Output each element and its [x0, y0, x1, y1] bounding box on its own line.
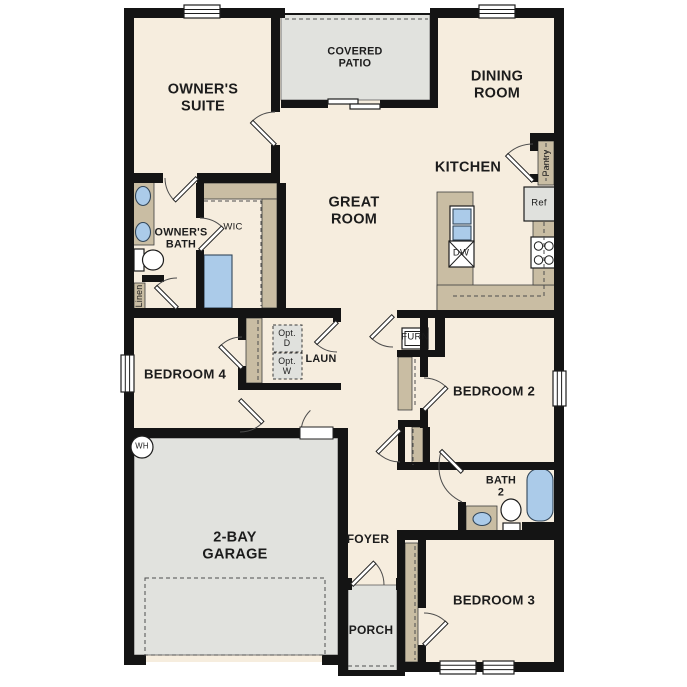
- room-label-foyer: FOYER: [347, 533, 390, 547]
- label-water-heater: WH: [135, 443, 149, 452]
- owners-bath-sink-2: [136, 223, 151, 242]
- bedroom4-closet: [246, 318, 262, 383]
- room-label-owners-bath: OWNER'S BATH: [155, 227, 208, 252]
- window-bedroom3-right: [483, 661, 514, 674]
- toilet-owners-bath: [134, 249, 164, 271]
- window-owners-suite: [184, 5, 220, 18]
- bath2-tub: [527, 469, 553, 521]
- room-label-bedroom2: BEDROOM 2: [453, 383, 535, 398]
- kitchen-sink-basin-1: [453, 209, 471, 224]
- bedroom2-closet-a: [398, 357, 412, 410]
- label-furnace: FURN: [401, 333, 428, 344]
- room-label-wic: WIC: [223, 223, 242, 234]
- room-label-owners-suite: OWNER'S SUITE: [168, 81, 238, 114]
- label-fridge: Ref: [531, 199, 547, 210]
- hall-closet-b: [412, 427, 423, 467]
- room-label-porch: PORCH: [349, 624, 394, 638]
- room-label-covered-patio: COVERED PATIO: [327, 46, 382, 71]
- bath2-sink: [473, 513, 491, 526]
- bedroom3-closet: [405, 543, 418, 662]
- floor-plan-drawing: [0, 0, 687, 687]
- room-label-dining-room: DINING ROOM: [471, 68, 523, 101]
- label-dishwasher: DW: [453, 249, 469, 260]
- room-label-bath2: BATH 2: [486, 475, 516, 500]
- room-label-bedroom4: BEDROOM 4: [144, 366, 226, 381]
- window-dining: [479, 5, 515, 18]
- room-label-garage: 2-BAY GARAGE: [202, 529, 267, 562]
- label-linen: Linen: [134, 285, 144, 308]
- room-label-great-room: GREAT ROOM: [329, 194, 380, 227]
- label-optional-washer: Opt. W: [278, 356, 296, 376]
- label-optional-dryer: Opt. D: [278, 328, 296, 348]
- room-label-kitchen: KITCHEN: [435, 160, 501, 177]
- toilet-bath2: [501, 499, 521, 532]
- owners-shower: [204, 255, 232, 308]
- owners-bath-sink-1: [136, 187, 151, 206]
- window-bedroom3-left: [440, 661, 476, 674]
- kitchen-counter-bottom: [437, 285, 555, 311]
- window-bedroom4: [121, 355, 134, 392]
- window-bedroom2: [553, 371, 566, 406]
- wic-shelf-right: [262, 199, 277, 308]
- room-label-laundry: LAUN: [306, 353, 337, 365]
- wic-shelf-top: [200, 183, 277, 199]
- room-label-bedroom3: BEDROOM 3: [453, 592, 535, 607]
- label-pantry: Pantry: [541, 150, 551, 177]
- kitchen-sink-basin-2: [453, 226, 471, 240]
- floor-plan: OWNER'S SUITE COVERED PATIO DINING ROOM …: [0, 0, 687, 687]
